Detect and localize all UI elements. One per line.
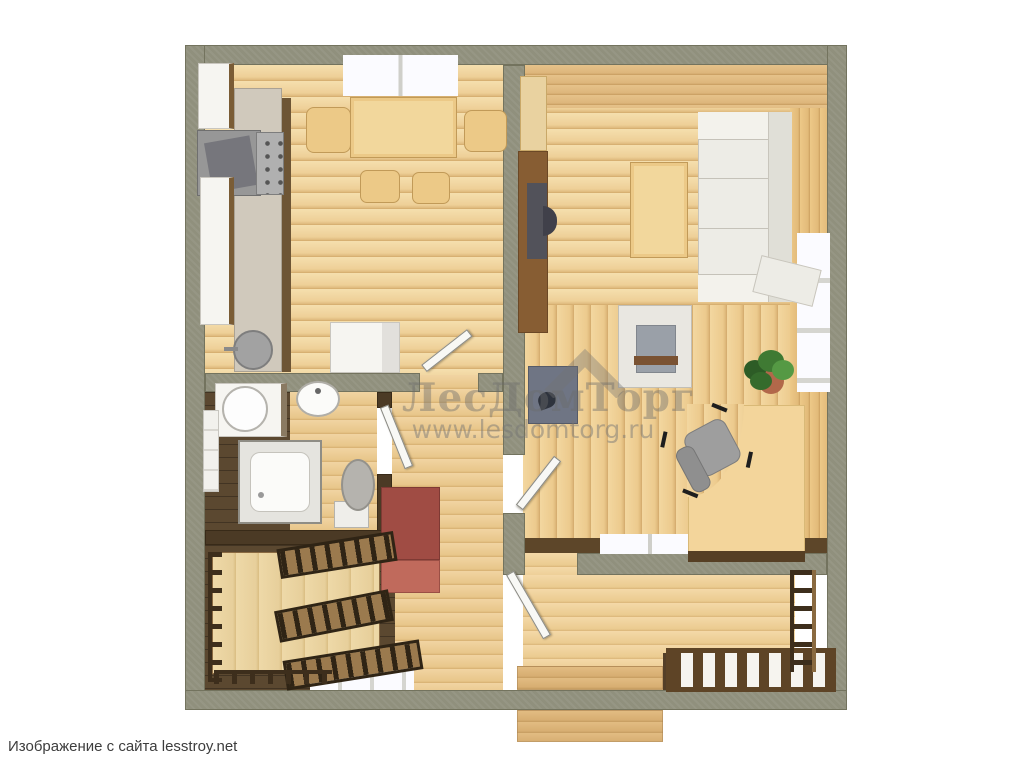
office-chair-leg (746, 451, 753, 467)
wash-basin (296, 381, 340, 417)
floorplan-screenshot: ЛесДомТорг www.lesdomtorg.ru Изображение… (0, 0, 1024, 768)
armchair-front-rail (634, 356, 678, 365)
kitchen-sink-faucet (224, 347, 238, 351)
dining-chair (412, 172, 450, 204)
plant-leaves (772, 360, 794, 380)
fridge-side-face (382, 323, 399, 372)
shower-drain (258, 492, 264, 498)
sofa-cushion-seam (698, 228, 768, 229)
toilet-lid (341, 459, 375, 511)
kitchen-base-cabinet (200, 177, 234, 325)
office-chair-leg (711, 403, 727, 413)
outer-wall-top (185, 45, 847, 65)
living-window-right (797, 233, 830, 392)
watermark-brand-text: ЛесДомТорг (402, 379, 664, 418)
porch-outside-step (517, 710, 663, 742)
tall-cabinet (520, 76, 547, 151)
entry-doorway-gap (525, 553, 577, 575)
watermark-url-text: www.lesdomtorg.ru (402, 417, 664, 442)
dining-chair (464, 110, 507, 152)
outer-wall-right (827, 45, 847, 710)
dining-chair (360, 170, 400, 203)
wardrobe-red-top-face (381, 560, 440, 593)
washing-machine-drum (222, 386, 268, 432)
outer-wall-bottom (185, 690, 847, 710)
radiator (203, 410, 219, 492)
kitchen-sink (233, 330, 273, 370)
stair-railing-bottom (214, 670, 332, 684)
dining-window (343, 55, 458, 96)
sofa-armrest-top (698, 112, 768, 140)
desk-shadow (688, 551, 805, 562)
plant-leaves (750, 372, 772, 390)
coffee-table-top (634, 166, 684, 254)
cooktop-panel (256, 132, 284, 195)
shower-tray-inner (250, 452, 310, 512)
kitchen-wall-cabinet (198, 63, 234, 129)
entry-wall-window (600, 534, 700, 554)
center-wall-lower (503, 513, 525, 575)
potted-plant (742, 350, 796, 398)
image-source-caption: Изображение с сайта lesstroy.net (8, 738, 237, 755)
entry-inner-steps (517, 666, 663, 690)
sofa-cushion-seam (698, 178, 768, 179)
porch-railing (790, 570, 816, 672)
stair-railing-left (208, 552, 222, 682)
living-top-wall-face (523, 65, 827, 108)
armchair-cushion (636, 325, 676, 373)
dining-table-top (354, 101, 453, 154)
dining-chair (306, 107, 351, 153)
basin-tap (315, 388, 321, 394)
